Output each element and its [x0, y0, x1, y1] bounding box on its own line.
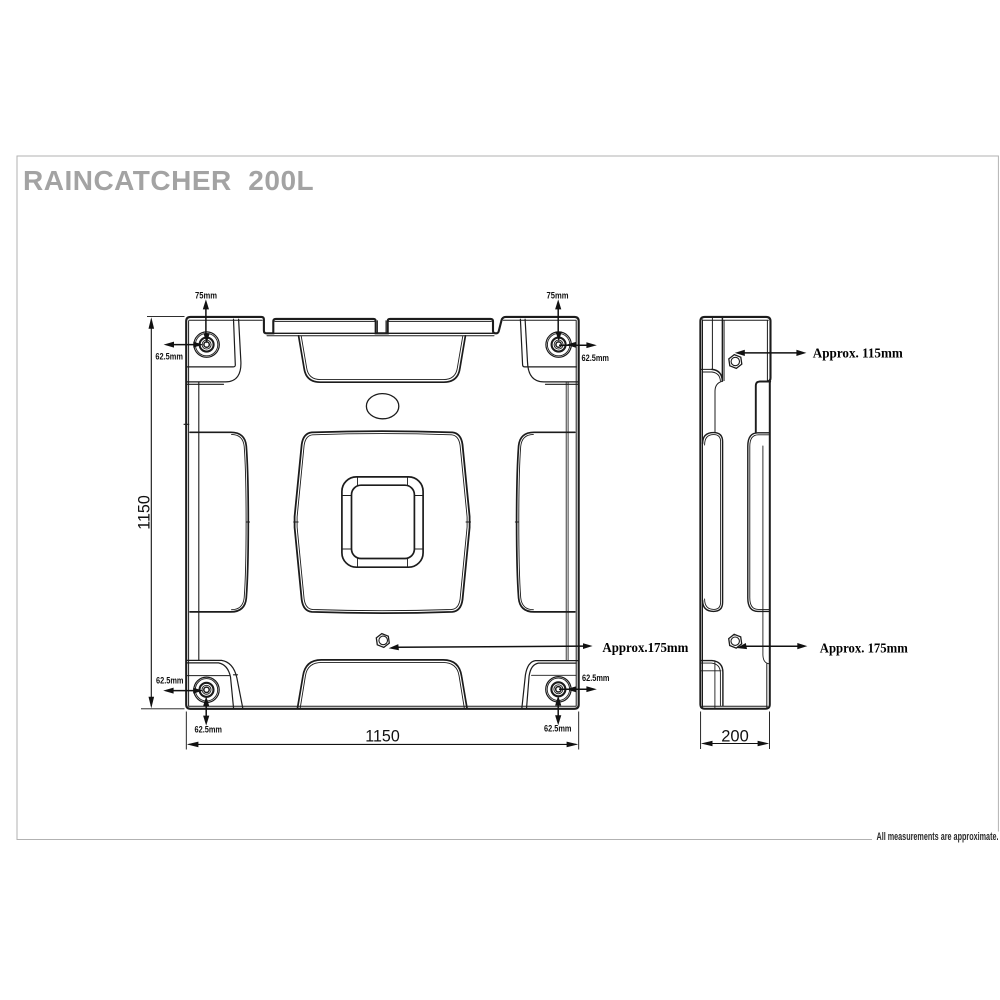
svg-text:Approx. 115mm: Approx. 115mm [813, 347, 903, 362]
svg-text:200: 200 [721, 727, 749, 745]
svg-text:RAINCATCHER 200L: RAINCATCHER 200L [23, 165, 314, 196]
svg-text:Approx. 175mm: Approx. 175mm [820, 641, 908, 656]
svg-text:62.5mm: 62.5mm [582, 353, 610, 364]
svg-text:75mm: 75mm [195, 291, 217, 302]
svg-text:75mm: 75mm [547, 291, 569, 302]
svg-text:62.5mm: 62.5mm [156, 676, 184, 687]
svg-text:62.5mm: 62.5mm [155, 351, 183, 362]
svg-text:62.5mm: 62.5mm [544, 724, 572, 735]
svg-text:1150: 1150 [135, 495, 153, 530]
svg-text:1150: 1150 [365, 727, 400, 745]
svg-text:62.5mm: 62.5mm [195, 725, 223, 736]
svg-text:All measurements are approxima: All measurements are approximate. [877, 831, 999, 843]
svg-text:62.5mm: 62.5mm [582, 673, 610, 684]
svg-text:Approx.175mm: Approx.175mm [602, 641, 688, 656]
